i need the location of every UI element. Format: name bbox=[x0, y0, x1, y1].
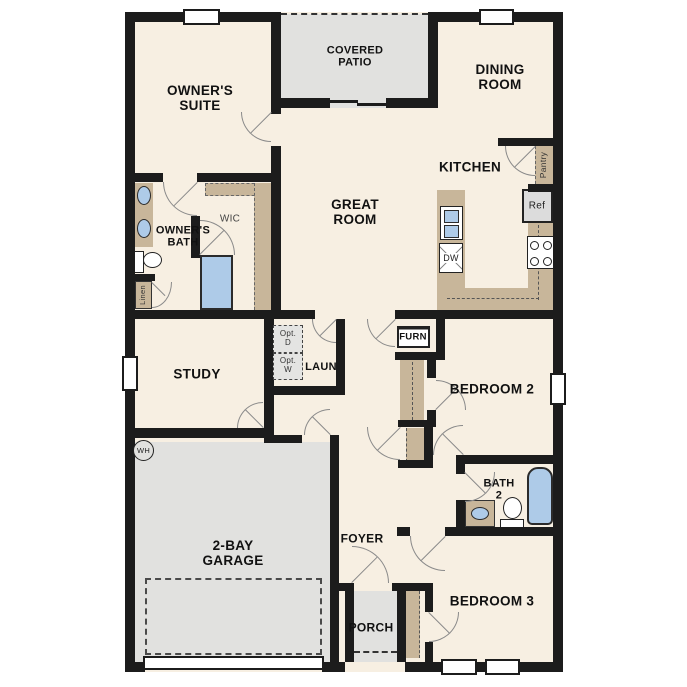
wall bbox=[477, 662, 485, 672]
bath-sink bbox=[137, 219, 151, 238]
water-heater-label: WH bbox=[137, 446, 150, 454]
dishwasher-label: DW bbox=[442, 253, 460, 263]
pantry-label: Pantry bbox=[539, 152, 549, 178]
room-label-porch: PORCH bbox=[349, 621, 394, 634]
wall bbox=[427, 360, 436, 378]
wall bbox=[271, 108, 281, 114]
shower bbox=[200, 255, 233, 310]
window bbox=[183, 9, 220, 25]
kitchen-counter-bottom bbox=[437, 288, 553, 310]
wall bbox=[197, 173, 281, 182]
wall bbox=[336, 319, 345, 386]
label-line: OWNER'S bbox=[167, 83, 233, 98]
room-label-kitchen: KITCHEN bbox=[439, 159, 501, 174]
wall bbox=[520, 662, 563, 672]
label-line: ROOM bbox=[331, 212, 379, 227]
label-line: PATIO bbox=[327, 57, 384, 69]
closet-rod-line bbox=[412, 362, 413, 420]
room-label-owners-suite: OWNER'S SUITE bbox=[167, 83, 233, 113]
wall bbox=[456, 455, 465, 474]
wall bbox=[271, 98, 330, 108]
room-label-covered-patio: COVERED PATIO bbox=[327, 45, 384, 70]
porch-open-edge bbox=[354, 651, 397, 656]
room-label-great-room: GREAT ROOM bbox=[331, 197, 379, 227]
room-label-foyer: FOYER bbox=[341, 532, 384, 545]
label-line: GARAGE bbox=[202, 553, 263, 568]
wall bbox=[220, 12, 281, 22]
wall bbox=[405, 662, 441, 672]
optional-washer-label: Opt. W bbox=[280, 357, 296, 375]
furnace-label: FURN bbox=[399, 333, 427, 344]
coat-closet-shelf bbox=[406, 428, 424, 462]
wall bbox=[553, 12, 563, 373]
stove-burner bbox=[530, 241, 539, 250]
room-label-owners-bath: OWNER'S BATH bbox=[156, 225, 210, 250]
room-label-laundry: LAUN bbox=[305, 361, 337, 373]
label-line: 2-BAY bbox=[202, 538, 263, 553]
sliding-door-panel bbox=[357, 103, 386, 106]
label-line: SUITE bbox=[167, 98, 233, 113]
linen-label: Linen bbox=[139, 285, 147, 305]
wall bbox=[425, 642, 433, 662]
room-label-dining-room: DINING ROOM bbox=[475, 62, 524, 92]
label-line: COVERED bbox=[327, 45, 384, 57]
wall bbox=[445, 527, 553, 536]
wall bbox=[395, 310, 553, 319]
stove-burner bbox=[543, 257, 552, 266]
wall bbox=[271, 12, 281, 108]
wall bbox=[528, 184, 553, 192]
label-line: 2 bbox=[484, 490, 515, 502]
label-line: DINING bbox=[475, 62, 524, 77]
refrigerator-label: Ref bbox=[529, 200, 545, 211]
wall bbox=[125, 12, 135, 356]
label-line: GREAT bbox=[331, 197, 379, 212]
wall bbox=[125, 391, 135, 672]
room-label-bedroom2: BEDROOM 2 bbox=[450, 381, 534, 396]
window bbox=[122, 356, 138, 391]
bath2-sink bbox=[471, 507, 489, 520]
optional-dryer-label: Opt. D bbox=[280, 330, 296, 348]
wall bbox=[395, 352, 445, 360]
wall bbox=[330, 435, 339, 662]
wall bbox=[397, 527, 410, 536]
garage-bay-outline bbox=[145, 578, 322, 655]
wall bbox=[428, 12, 438, 108]
wall bbox=[125, 662, 145, 672]
room-label-bedroom3: BEDROOM 3 bbox=[450, 593, 534, 608]
bedroom3-closet-shelf bbox=[404, 591, 420, 658]
window bbox=[485, 659, 520, 675]
wall bbox=[125, 310, 315, 319]
label-line: W bbox=[280, 366, 296, 375]
wall bbox=[498, 138, 553, 146]
island-sink-basin bbox=[444, 210, 459, 223]
garage-door bbox=[143, 656, 324, 670]
stove-burner bbox=[530, 257, 539, 266]
wall bbox=[438, 12, 479, 22]
wall bbox=[398, 420, 436, 427]
stove-burner bbox=[543, 241, 552, 250]
wall bbox=[264, 435, 302, 443]
wall bbox=[386, 98, 438, 108]
room-label-study: STUDY bbox=[173, 366, 220, 381]
floor-plan: FURN Opt. D Opt. W WH DW OWNER'S SUITE C… bbox=[0, 0, 687, 687]
island-sink-basin bbox=[444, 225, 459, 238]
wall bbox=[397, 583, 406, 662]
wall bbox=[264, 386, 345, 395]
label-line: D bbox=[280, 339, 296, 348]
wall bbox=[135, 173, 163, 182]
label-line: BATH bbox=[484, 478, 515, 490]
patio-open-edge bbox=[281, 13, 428, 18]
window bbox=[441, 659, 477, 675]
room-label-wic: WIC bbox=[220, 213, 240, 224]
label-line: BATH bbox=[156, 237, 210, 249]
toilet-bowl bbox=[143, 252, 162, 268]
wall bbox=[271, 146, 281, 310]
wall bbox=[553, 405, 563, 672]
room-label-bath2: BATH 2 bbox=[484, 478, 515, 503]
label-line: ROOM bbox=[475, 77, 524, 92]
wic-shelf-right bbox=[254, 183, 271, 310]
counter-overhang-line bbox=[447, 298, 539, 299]
bath-sink bbox=[137, 186, 151, 205]
wall bbox=[125, 428, 264, 438]
bathtub bbox=[527, 467, 553, 525]
wall bbox=[463, 455, 553, 464]
wall bbox=[398, 460, 433, 468]
wall bbox=[425, 583, 433, 612]
window bbox=[479, 9, 514, 25]
label-line: OWNER'S bbox=[156, 225, 210, 237]
sliding-door-panel bbox=[330, 100, 358, 103]
wall bbox=[322, 662, 345, 672]
room-label-garage: 2-BAY GARAGE bbox=[202, 538, 263, 568]
window bbox=[550, 373, 566, 405]
